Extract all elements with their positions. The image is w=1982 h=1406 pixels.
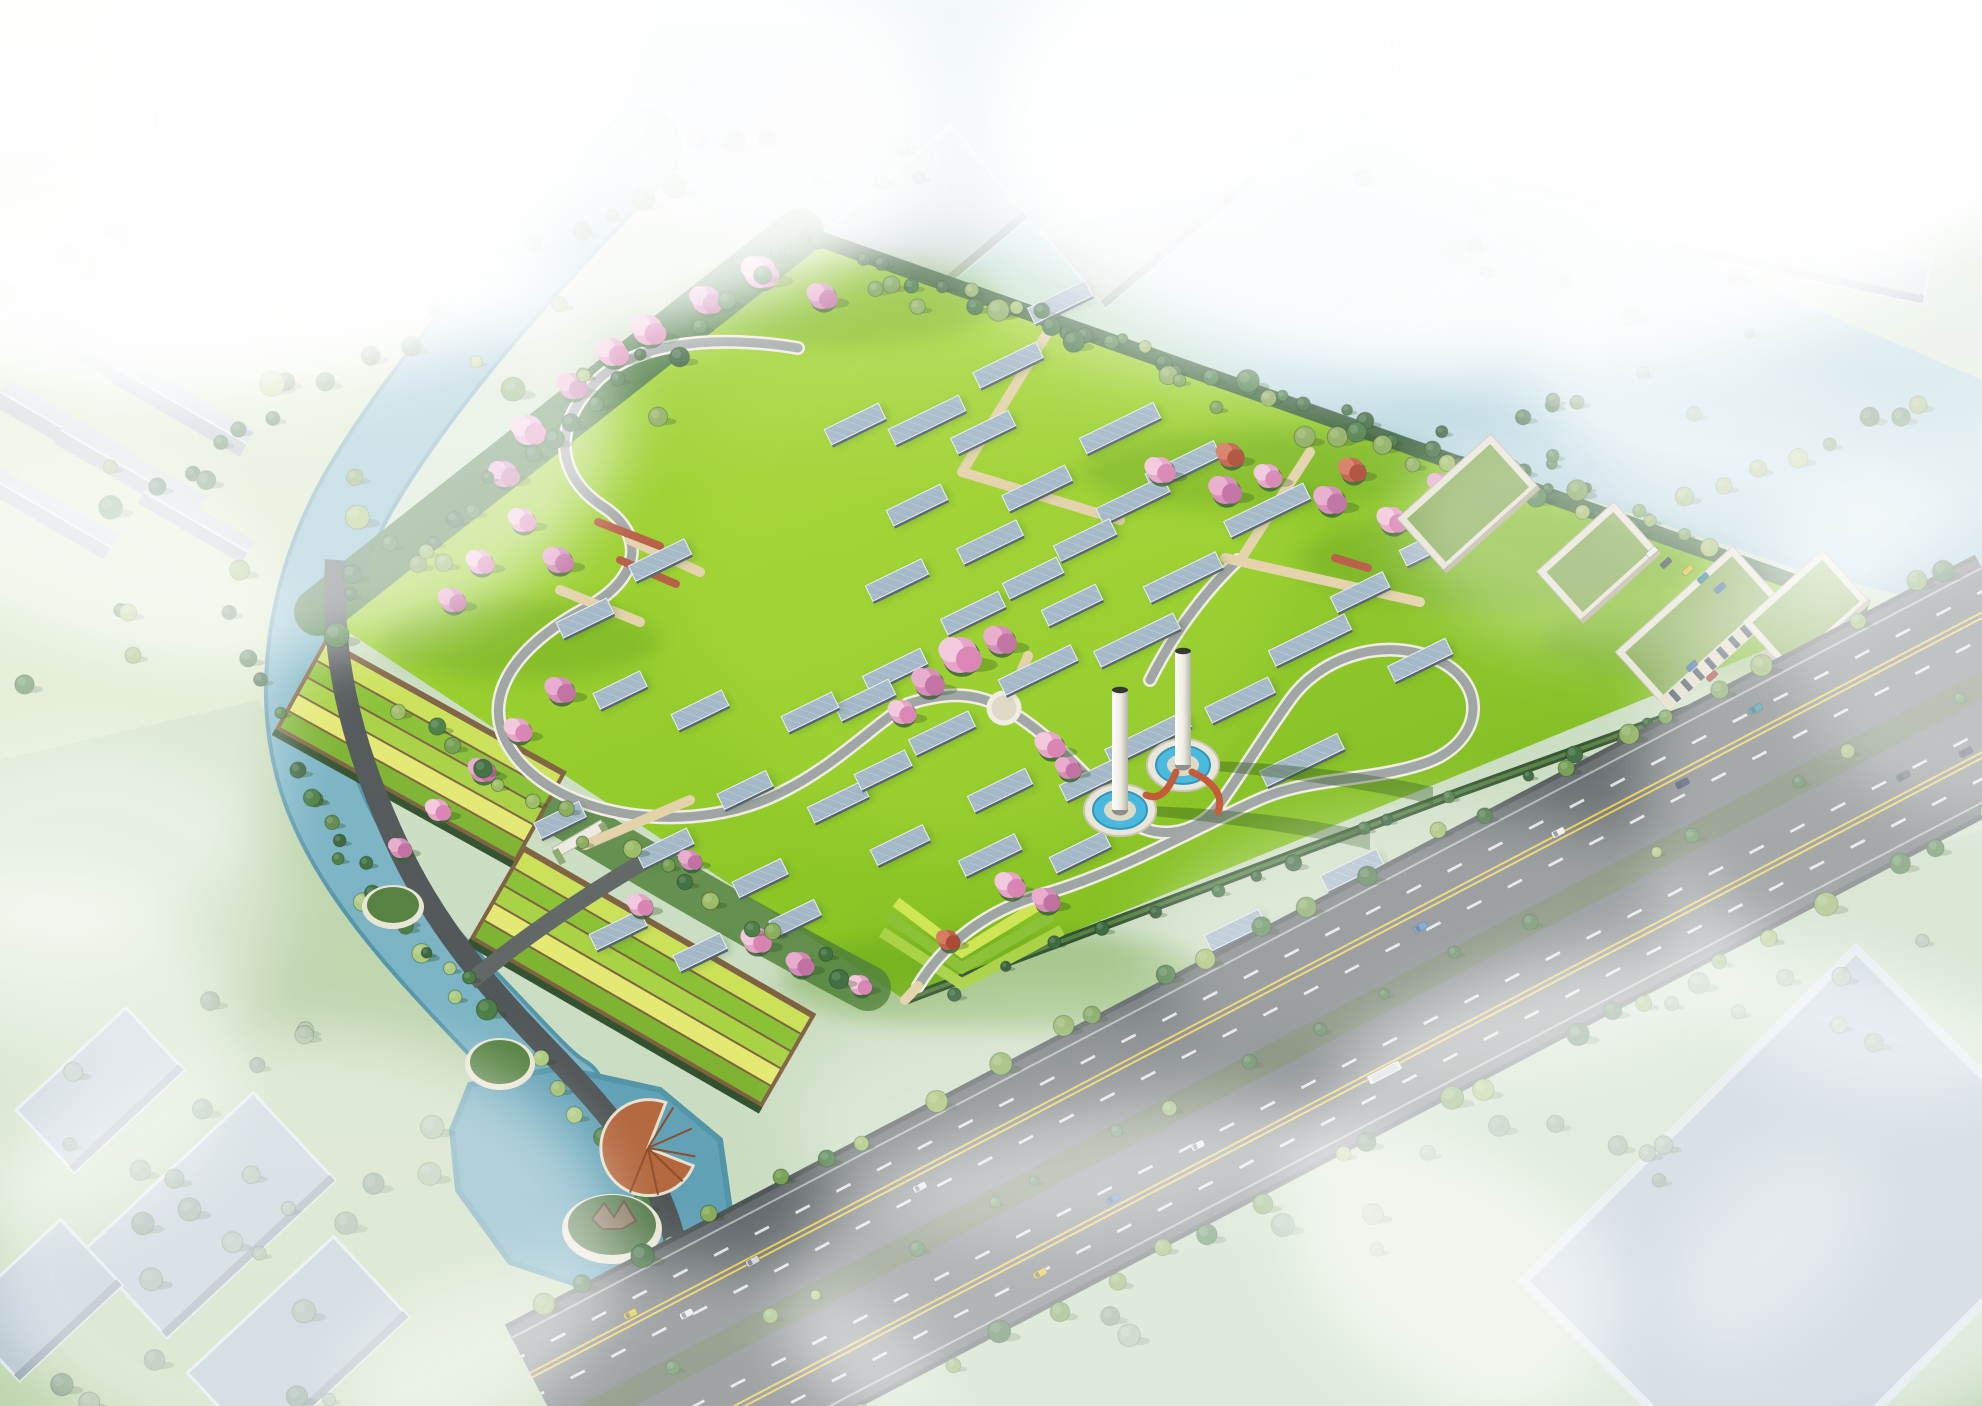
rendering-canvas (0, 0, 1982, 1406)
atmosphere-veil (0, 0, 1982, 1406)
aerial-site-rendering (0, 0, 1982, 1406)
